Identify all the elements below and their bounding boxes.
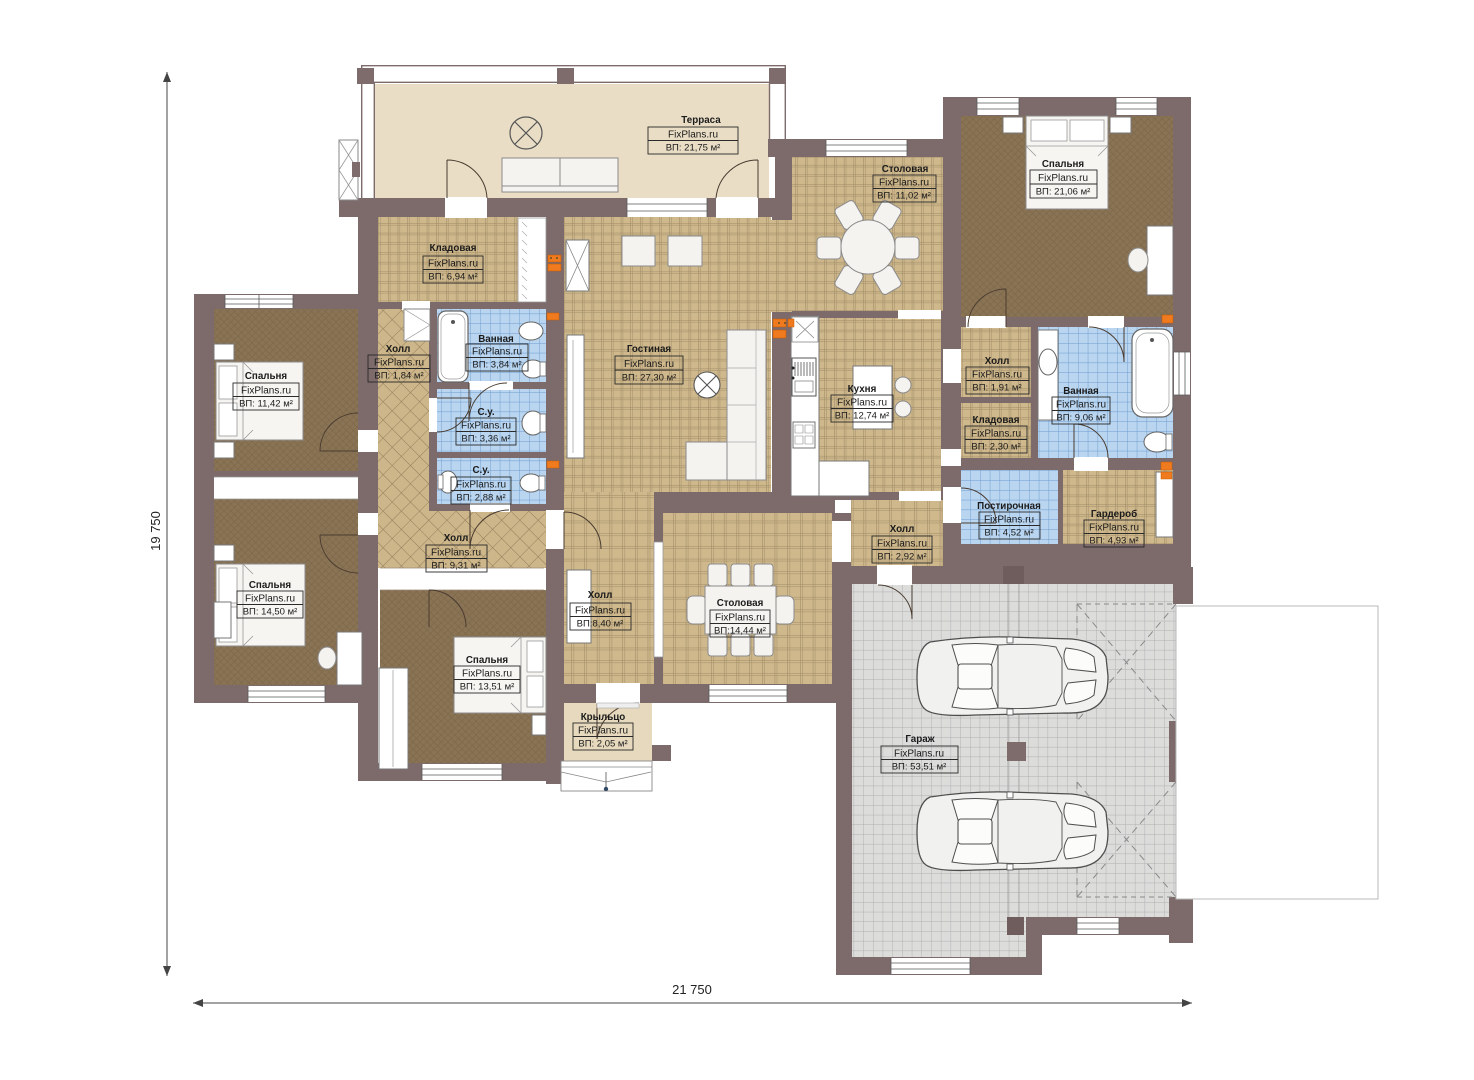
svg-text:Крыльцо: Крыльцо [581,712,626,723]
svg-text:Холл: Холл [890,524,915,535]
svg-text:FixPlans.ru: FixPlans.ru [575,606,625,617]
svg-text:FixPlans.ru: FixPlans.ru [877,539,927,550]
svg-text:Холл: Холл [386,344,411,355]
svg-text:Холл: Холл [444,533,469,544]
svg-text:Спальня: Спальня [466,655,509,666]
svg-text:FixPlans.ru: FixPlans.ru [578,726,628,737]
svg-text:19 750: 19 750 [148,511,163,551]
svg-text:ВП: 9,06 м²: ВП: 9,06 м² [1056,413,1105,424]
svg-text:ВП: 53,51 м²: ВП: 53,51 м² [892,762,947,773]
svg-text:Гараж: Гараж [905,734,935,745]
svg-text:FixPlans.ru: FixPlans.ru [894,749,944,760]
svg-text:ВП: 9,31 м²: ВП: 9,31 м² [431,561,480,572]
svg-text:ВП: 13,51 м²: ВП: 13,51 м² [460,682,515,693]
svg-text:ВП: 2,88 м²: ВП: 2,88 м² [456,493,505,504]
svg-text:ВП: 11,02 м²: ВП: 11,02 м² [877,191,931,202]
svg-text:FixPlans.ru: FixPlans.ru [462,669,512,680]
svg-text:FixPlans.ru: FixPlans.ru [972,370,1022,381]
svg-text:FixPlans.ru: FixPlans.ru [374,358,424,369]
svg-text:FixPlans.ru: FixPlans.ru [971,429,1021,440]
svg-text:Спальня: Спальня [249,580,292,591]
svg-text:ВП: 2,30 м²: ВП: 2,30 м² [971,442,1020,453]
svg-text:21 750: 21 750 [672,982,712,997]
svg-text:FixPlans.ru: FixPlans.ru [1038,173,1088,184]
svg-text:ВП: 2,05 м²: ВП: 2,05 м² [578,739,627,750]
svg-text:ВП:14,44 м²: ВП:14,44 м² [714,626,766,637]
svg-text:Ванная: Ванная [1063,386,1099,397]
svg-text:ВП: 3,84 м²: ВП: 3,84 м² [472,360,521,371]
svg-text:FixPlans.ru: FixPlans.ru [472,347,522,358]
svg-text:ВП: 21,06 м²: ВП: 21,06 м² [1036,187,1091,198]
svg-text:ВП: 11,42 м²: ВП: 11,42 м² [239,399,293,410]
svg-text:Спальня: Спальня [245,371,288,382]
svg-text:FixPlans.ru: FixPlans.ru [879,178,929,189]
svg-text:Гостиная: Гостиная [627,344,672,355]
svg-text:FixPlans.ru: FixPlans.ru [837,398,887,409]
svg-text:С.у.: С.у. [472,465,489,476]
svg-text:ВП: 1,91 м²: ВП: 1,91 м² [972,383,1021,394]
svg-text:FixPlans.ru: FixPlans.ru [241,386,291,397]
svg-text:Постирочная: Постирочная [977,501,1041,512]
svg-text:Столовая: Столовая [717,598,764,609]
svg-text:ВП: 21,75 м²: ВП: 21,75 м² [666,143,721,154]
svg-text:FixPlans.ru: FixPlans.ru [456,480,506,491]
svg-text:ВП: 6,94 м²: ВП: 6,94 м² [428,272,477,283]
svg-text:Спальня: Спальня [1042,159,1085,170]
svg-text:ВП: 4,52 м²: ВП: 4,52 м² [984,528,1033,539]
svg-text:Гардероб: Гардероб [1091,509,1137,520]
svg-text:Терраса: Терраса [681,115,721,126]
svg-text:Холл: Холл [588,590,613,601]
svg-text:Холл: Холл [985,356,1010,367]
svg-text:FixPlans.ru: FixPlans.ru [1089,523,1139,534]
svg-text:ВП: 3,36 м²: ВП: 3,36 м² [461,434,510,445]
svg-text:Кладовая: Кладовая [973,415,1020,426]
svg-text:FixPlans.ru: FixPlans.ru [431,548,481,559]
svg-text:ВП:8,40 м²: ВП:8,40 м² [577,619,624,630]
svg-text:FixPlans.ru: FixPlans.ru [461,421,511,432]
svg-text:FixPlans.ru: FixPlans.ru [428,259,478,270]
svg-text:ВП: 27,30 м²: ВП: 27,30 м² [622,373,677,384]
svg-text:Кладовая: Кладовая [430,243,477,254]
svg-text:Ванная: Ванная [478,334,514,345]
svg-text:FixPlans.ru: FixPlans.ru [668,130,718,141]
svg-text:ВП: 14,50 м²: ВП: 14,50 м² [243,607,298,618]
svg-text:FixPlans.ru: FixPlans.ru [715,613,765,624]
svg-text:FixPlans.ru: FixPlans.ru [984,515,1034,526]
svg-text:FixPlans.ru: FixPlans.ru [1056,400,1106,411]
svg-text:FixPlans.ru: FixPlans.ru [624,359,674,370]
svg-text:Столовая: Столовая [882,164,929,175]
svg-text:ВП: 2,92 м²: ВП: 2,92 м² [877,552,926,563]
svg-text:ВП: 1,84 м²: ВП: 1,84 м² [374,371,423,382]
svg-text:С.у.: С.у. [477,407,494,418]
svg-text:ВП: 12,74 м²: ВП: 12,74 м² [835,411,890,422]
svg-text:Кухня: Кухня [848,384,877,395]
svg-text:FixPlans.ru: FixPlans.ru [245,594,295,605]
svg-text:ВП: 4,93 м²: ВП: 4,93 м² [1089,536,1138,547]
